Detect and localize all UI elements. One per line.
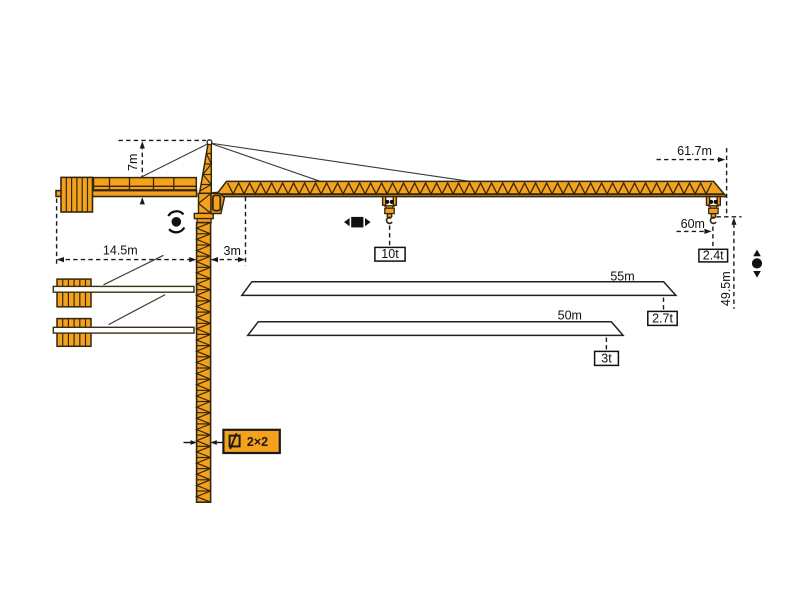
svg-text:2.7t: 2.7t [652, 311, 673, 325]
svg-text:61.7m: 61.7m [677, 144, 712, 158]
svg-text:2.4t: 2.4t [703, 248, 724, 262]
svg-text:3t: 3t [601, 351, 612, 365]
svg-text:55m: 55m [610, 269, 634, 283]
svg-text:7m: 7m [126, 154, 140, 171]
svg-text:10t: 10t [381, 247, 399, 261]
svg-text:14.5m: 14.5m [103, 244, 138, 258]
svg-text:60m: 60m [681, 217, 705, 231]
svg-text:50m: 50m [558, 308, 582, 322]
svg-text:49.5m: 49.5m [719, 271, 733, 306]
svg-text:2×2: 2×2 [247, 435, 268, 449]
svg-text:3m: 3m [224, 244, 241, 258]
